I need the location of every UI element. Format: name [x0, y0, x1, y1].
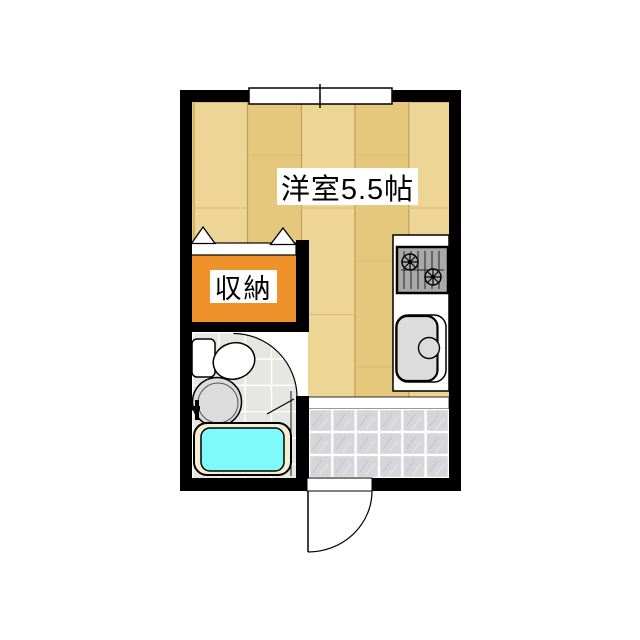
floor-plan-drawing: [0, 0, 640, 640]
wall-left: [180, 90, 192, 491]
wall-closet-bottom: [180, 322, 309, 332]
window: [249, 84, 392, 108]
entrance-step-edge: [307, 397, 449, 409]
sink-faucet-icon: [419, 338, 440, 359]
wall-closet-right: [296, 240, 309, 332]
bathtub-water: [201, 428, 284, 471]
entrance-door-swing: [307, 478, 372, 552]
bathtub-icon: [194, 423, 291, 475]
room-label: 洋室5.5帖: [277, 168, 418, 205]
wall-right: [449, 90, 461, 491]
bathroom: [182, 332, 297, 478]
closet-label: 収納: [210, 270, 277, 303]
gas-stove-icon: [397, 247, 448, 293]
toilet-tank: [192, 339, 215, 377]
stove-burner: [402, 254, 418, 270]
washbasin-icon: [193, 378, 242, 427]
stove-burner: [425, 269, 441, 285]
floor-plan: 洋室5.5帖 収納: [0, 0, 640, 640]
kitchen-sink-icon: [396, 315, 446, 382]
entrance-door-arc: [308, 491, 372, 552]
wall-bath-entry: [296, 396, 309, 491]
entrance-tile-floor: [309, 409, 449, 478]
